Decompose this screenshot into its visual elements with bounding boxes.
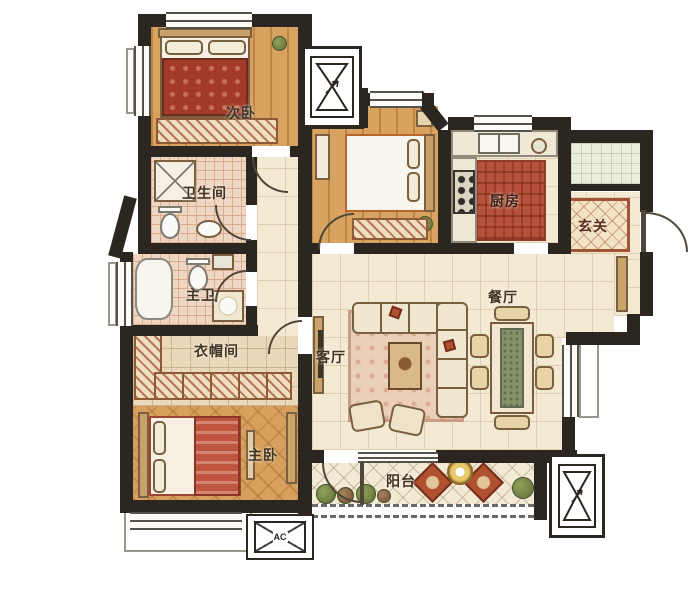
window	[116, 262, 133, 326]
balcony-railing	[312, 504, 534, 518]
bathtub-icon	[135, 258, 173, 320]
wall-segment	[290, 146, 312, 157]
window	[166, 12, 252, 29]
blanket-icon	[194, 416, 240, 496]
entry-door-leaf	[641, 210, 646, 252]
bed-headboard-icon	[424, 134, 435, 212]
pillow-icon	[153, 421, 166, 455]
armchair-icon	[348, 399, 386, 432]
pillow-icon	[165, 40, 203, 55]
wardrobe-icon	[156, 118, 278, 144]
dining-chair-icon	[494, 415, 530, 430]
pillow-icon	[153, 459, 166, 493]
bay-window	[130, 512, 242, 530]
ac-label: AC	[273, 532, 288, 542]
window	[562, 345, 579, 417]
wall-segment	[571, 184, 640, 191]
counter-burner-icon	[531, 138, 547, 154]
wall-segment	[436, 450, 536, 463]
kitchen-sink-icon	[478, 133, 520, 154]
room-label-master-bathroom: 主卫	[186, 288, 216, 302]
wall-segment	[354, 243, 438, 254]
table-runner-icon	[500, 328, 524, 408]
wall-segment	[640, 252, 653, 316]
wall-segment	[312, 450, 324, 463]
room-label-dining-room: 餐厅	[488, 290, 518, 304]
pillow-icon	[208, 40, 246, 55]
room-label-kitchen: 厨房	[490, 194, 520, 208]
coffee-table-icon	[388, 342, 422, 390]
sofa-corner-icon	[436, 302, 468, 418]
room-label-living-room: 客厅	[316, 350, 346, 364]
window	[134, 46, 151, 116]
washer-icon	[212, 254, 234, 270]
room-label-balcony: 阳台	[386, 474, 416, 488]
balcony-door-leaf	[360, 463, 364, 505]
floor-plan: AC	[0, 0, 693, 589]
plant-icon	[272, 36, 287, 51]
room-label-guest-bathroom: 卫生间	[182, 186, 227, 200]
wall-segment	[108, 195, 137, 258]
room-label-master-bedroom: 主卧	[248, 448, 278, 462]
wall-segment	[565, 130, 650, 143]
wall-segment	[438, 130, 451, 254]
bed-headboard-icon	[138, 412, 149, 498]
wall-segment	[640, 130, 653, 212]
dining-chair-icon	[470, 366, 489, 390]
pillow-icon	[407, 139, 420, 169]
dining-chair-icon	[470, 334, 489, 358]
utility-shaft-icon	[558, 464, 596, 528]
elevator-icon	[310, 56, 354, 118]
room-label-secondary-bedroom: 次卧	[226, 106, 256, 120]
toilet-bowl-icon	[160, 213, 180, 239]
dining-chair-icon	[535, 334, 554, 358]
desk-icon	[315, 134, 330, 180]
wall-segment	[298, 452, 312, 514]
wall-segment	[298, 354, 312, 452]
toilet-icon	[158, 206, 182, 213]
wardrobe-icon	[352, 218, 428, 240]
ac-platform-icon: AC	[254, 521, 306, 553]
door-arc-entry	[646, 212, 688, 252]
toilet-icon	[186, 258, 210, 265]
plant-icon	[377, 489, 391, 503]
room-label-cloakroom: 衣帽间	[194, 344, 239, 358]
sink-icon	[196, 220, 222, 238]
wall-segment	[438, 243, 514, 254]
wall-segment	[120, 325, 258, 336]
dining-chair-icon	[535, 366, 554, 390]
wardrobe-row-icon	[154, 372, 292, 400]
wall-segment	[566, 332, 640, 345]
wall-segment	[138, 243, 248, 254]
shoe-cabinet-icon	[616, 256, 628, 312]
plant-icon	[512, 477, 534, 499]
floor-utility-nook	[571, 143, 640, 184]
window-sill	[579, 342, 599, 418]
wall-segment	[138, 146, 252, 157]
dresser-icon	[286, 412, 297, 484]
dining-chair-icon	[494, 306, 530, 321]
stove-icon	[453, 170, 475, 214]
wall-segment	[548, 243, 571, 254]
window	[474, 115, 532, 132]
balcony-slider-window	[358, 452, 438, 463]
pillow-icon	[407, 172, 420, 202]
room-label-foyer: 玄关	[578, 219, 608, 233]
window	[370, 91, 422, 108]
